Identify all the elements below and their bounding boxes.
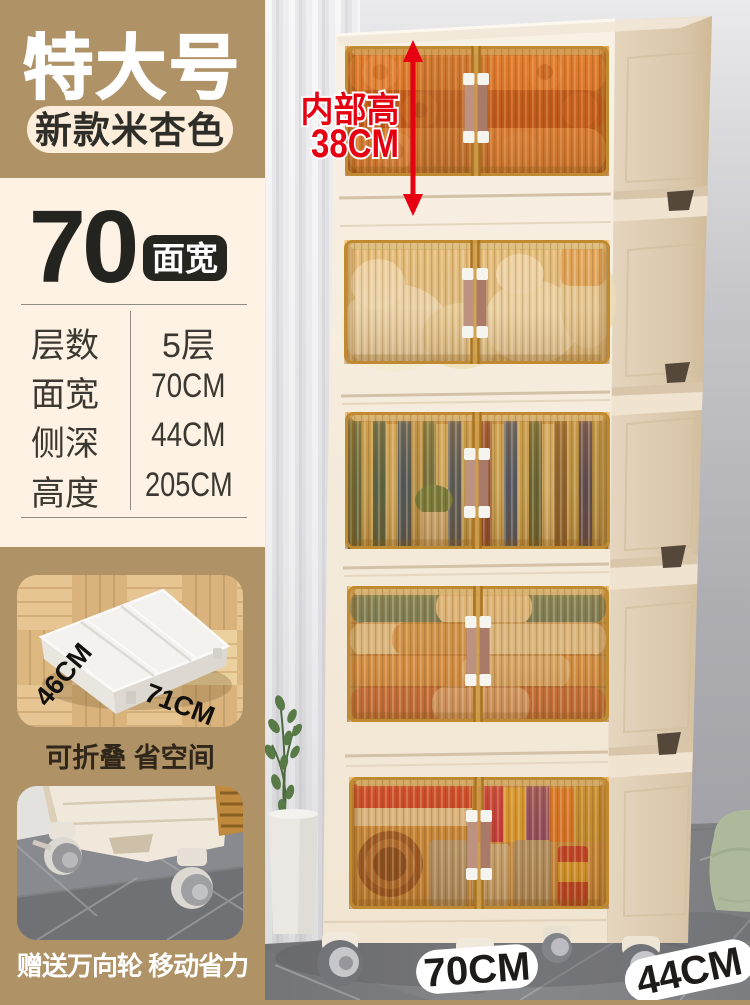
svg-text:38CM: 38CM [311, 122, 399, 166]
svg-text:70CM: 70CM [422, 944, 532, 995]
